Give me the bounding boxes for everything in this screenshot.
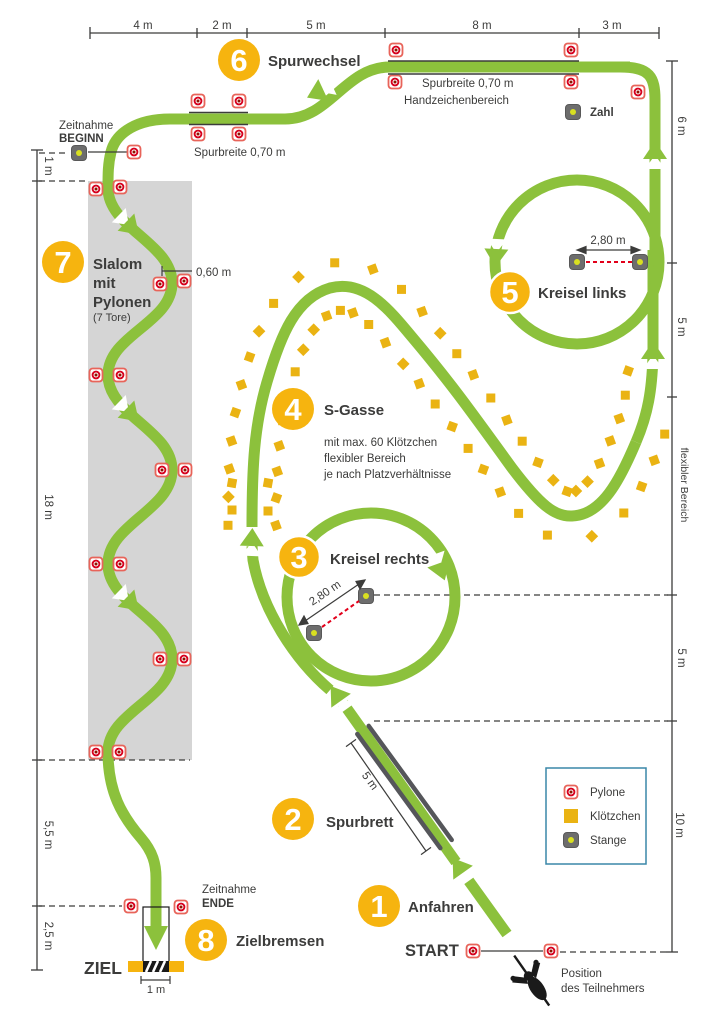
svg-text:3: 3: [290, 540, 307, 575]
svg-text:3 m: 3 m: [602, 20, 621, 32]
svg-text:0,60 m: 0,60 m: [196, 267, 231, 279]
svg-text:7: 7: [54, 245, 71, 280]
svg-text:Spurbrett: Spurbrett: [326, 814, 394, 831]
svg-text:5 m: 5 m: [675, 648, 687, 667]
svg-text:Anfahren: Anfahren: [408, 899, 474, 916]
svg-text:Pylone: Pylone: [590, 787, 625, 799]
svg-text:START: START: [405, 942, 459, 960]
svg-text:1 m: 1 m: [147, 984, 165, 996]
svg-text:je nach Platzverhältnisse: je nach Platzverhältnisse: [323, 469, 451, 481]
svg-text:18 m: 18 m: [42, 494, 54, 520]
svg-text:5 m: 5 m: [675, 317, 687, 336]
svg-text:8: 8: [197, 923, 214, 958]
svg-text:6 m: 6 m: [675, 116, 687, 135]
svg-text:10 m: 10 m: [673, 812, 685, 838]
svg-text:flexibler Bereich: flexibler Bereich: [324, 453, 406, 465]
svg-text:2 m: 2 m: [212, 20, 231, 32]
svg-text:(7 Tore): (7 Tore): [93, 312, 131, 324]
svg-text:des Teilnehmers: des Teilnehmers: [561, 983, 645, 995]
svg-text:mit max. 60 Klötzchen: mit max. 60 Klötzchen: [324, 437, 437, 449]
svg-text:Zielbremsen: Zielbremsen: [236, 933, 324, 950]
svg-text:Slalom: Slalom: [93, 256, 142, 273]
svg-text:Pylonen: Pylonen: [93, 294, 151, 311]
svg-text:ZIEL: ZIEL: [84, 958, 122, 978]
svg-text:Handzeichenbereich: Handzeichenbereich: [404, 95, 509, 107]
svg-text:S-Gasse: S-Gasse: [324, 402, 384, 419]
svg-text:4 m: 4 m: [133, 20, 152, 32]
svg-text:Position: Position: [561, 968, 602, 980]
svg-text:Spurbreite 0,70 m: Spurbreite 0,70 m: [194, 147, 285, 159]
svg-text:8 m: 8 m: [472, 20, 491, 32]
svg-text:Kreisel rechts: Kreisel rechts: [330, 551, 429, 568]
svg-text:5: 5: [501, 275, 518, 310]
svg-text:Zeitnahme: Zeitnahme: [202, 884, 256, 896]
svg-text:Spurwechsel: Spurwechsel: [268, 53, 361, 70]
svg-text:5 m: 5 m: [306, 20, 325, 32]
svg-text:4: 4: [284, 392, 302, 427]
svg-text:2,5 m: 2,5 m: [42, 922, 54, 951]
svg-text:Kreisel links: Kreisel links: [538, 285, 626, 302]
svg-text:5,5 m: 5,5 m: [42, 821, 54, 850]
svg-text:BEGINN: BEGINN: [59, 133, 104, 145]
svg-text:6: 6: [230, 43, 247, 78]
svg-text:flexibler Bereich: flexibler Bereich: [678, 448, 690, 523]
svg-text:Spurbreite 0,70 m: Spurbreite 0,70 m: [422, 78, 513, 90]
svg-text:1 m: 1 m: [42, 156, 54, 175]
svg-text:2,80 m: 2,80 m: [590, 235, 625, 247]
svg-text:1: 1: [370, 889, 387, 924]
svg-text:Zahl: Zahl: [590, 107, 614, 119]
svg-text:2: 2: [284, 802, 301, 837]
svg-text:Zeitnahme: Zeitnahme: [59, 120, 113, 132]
svg-text:Klötzchen: Klötzchen: [590, 811, 641, 823]
svg-text:Stange: Stange: [590, 835, 626, 847]
svg-text:mit: mit: [93, 275, 116, 292]
svg-text:ENDE: ENDE: [202, 898, 234, 910]
